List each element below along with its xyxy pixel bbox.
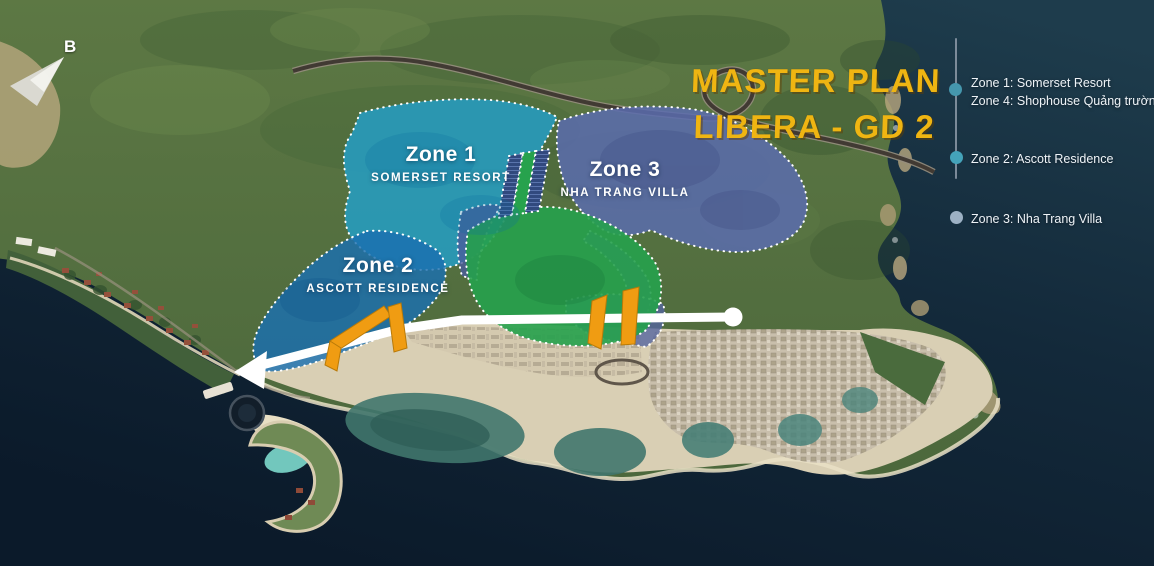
zone2-subtitle: ASCOTT RESIDENCE	[274, 283, 482, 295]
legend-item-2-line1: Zone 2: Ascott Residence	[971, 150, 1113, 168]
legend-item-1-line1: Zone 1: Somerset Resort	[971, 74, 1154, 92]
plan-title-line2: LIBERA - GD 2	[685, 110, 944, 143]
legend-dot-zone3	[950, 211, 963, 224]
master-plan-map: MASTER PLAN LIBERA - GD 2 Zone 1 SOMERSE…	[0, 0, 1154, 566]
zone3-name: Zone 3	[525, 158, 725, 182]
zone2-label: Zone 2 ASCOTT RESIDENCE	[274, 254, 482, 295]
legend-dot-zone1	[949, 83, 962, 96]
legend-item-3: Zone 3: Nha Trang Villa	[971, 210, 1102, 228]
zone3-label: Zone 3 NHA TRANG VILLA	[525, 158, 725, 199]
zone3-subtitle: NHA TRANG VILLA	[525, 187, 725, 199]
legend-item-1: Zone 1: Somerset Resort Zone 4: Shophous…	[971, 74, 1154, 110]
zone1-label: Zone 1 SOMERSET RESORT	[331, 143, 551, 184]
plan-title-line1: MASTER PLAN	[686, 64, 945, 97]
legend-item-2: Zone 2: Ascott Residence	[971, 150, 1113, 168]
legend-item-3-line1: Zone 3: Nha Trang Villa	[971, 210, 1102, 228]
zone1-name: Zone 1	[331, 143, 551, 167]
plan-title: MASTER PLAN LIBERA - GD 2	[685, 64, 946, 143]
compass-north-label: B	[64, 37, 76, 57]
zone1-subtitle: SOMERSET RESORT	[331, 172, 551, 184]
road-endpoint-marker	[724, 308, 743, 327]
zone2-name: Zone 2	[274, 254, 482, 278]
legend-dot-zone2	[950, 151, 963, 164]
legend-item-1-line2: Zone 4: Shophouse Quảng trường	[971, 92, 1154, 110]
